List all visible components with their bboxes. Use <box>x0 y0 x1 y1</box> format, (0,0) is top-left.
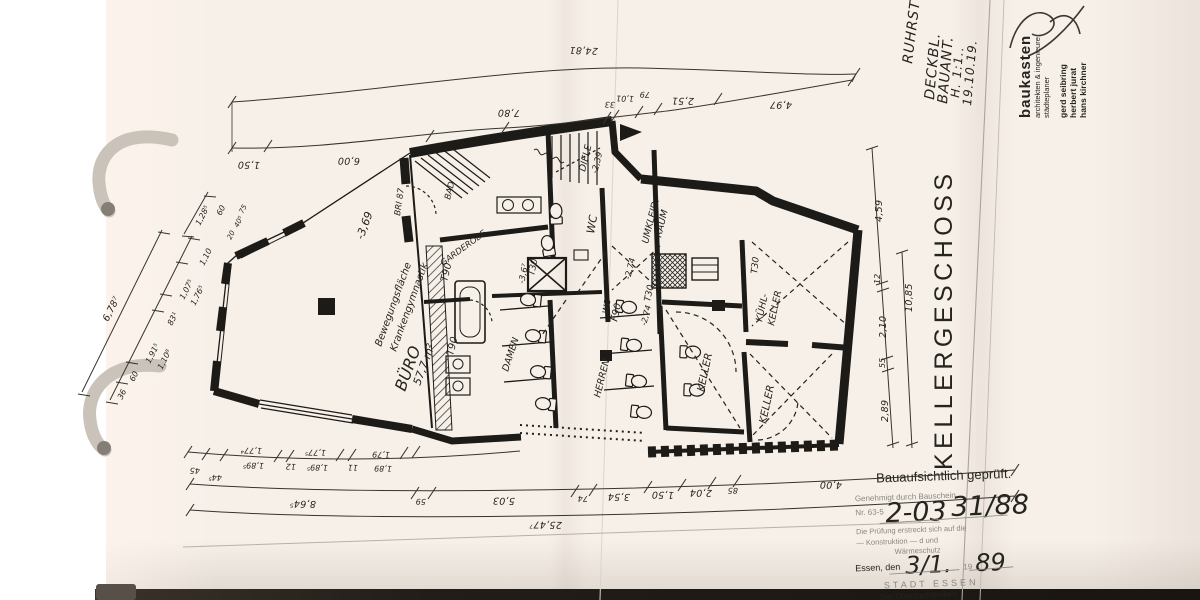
architect-partner1: gerd seibring <box>1058 64 1068 118</box>
architect-partner2: herbert jurat <box>1068 68 1078 118</box>
dim-top-s2: 6,00 <box>338 155 361 166</box>
dim-bot-s7: 2,04 <box>690 487 713 498</box>
dim-left-u3: 20 <box>226 229 237 241</box>
binder-ring-bottom <box>90 365 160 600</box>
dim-bot-s3: 5,03 <box>493 495 516 506</box>
dim-left-u4: 40⁵ <box>233 215 246 229</box>
binder-ring-top <box>99 137 172 216</box>
dim-top-s8: 4,97 <box>770 99 793 110</box>
room-herren-label: HERREN <box>592 358 612 399</box>
dim-bot-sub4: 1,89⁵ <box>243 461 264 470</box>
room-keller-label: KELLER <box>695 352 715 393</box>
dim-bot-s4: 74 <box>578 494 588 503</box>
door-t30a: T30 <box>527 258 540 277</box>
shaft-and-ducts <box>528 254 718 291</box>
architect-sub1: architekten & ingenieure <box>1033 37 1042 118</box>
dim-left-s5: 83¹ <box>166 311 180 327</box>
dim-top-s7: 2,51 <box>672 95 695 106</box>
room-damen-label: DAMEN <box>500 336 521 373</box>
dim-right-overall: 10,85 <box>904 283 915 312</box>
dimension-chain-right: 4,59 12 2,10 55 2,89 10,85 <box>866 146 918 448</box>
dim-top-s1: 1,50 <box>238 159 261 170</box>
dim-top-s4: 33 <box>605 100 615 109</box>
scanned-floorplan-photo: BÜRO 57,7 m² -3,69 Bewegungsfläche Krank… <box>0 0 1200 600</box>
dim-bot-sub5: 12 <box>286 462 296 471</box>
room-wc-label: WC <box>584 214 600 235</box>
dim-top-s6: 79 <box>640 90 650 99</box>
note-level: -3,69 <box>354 210 376 241</box>
dim-top-s5: 1,01 <box>616 94 634 103</box>
room-bad-label: BAD <box>443 180 457 201</box>
room-garderobe-label: GARDEROBE <box>439 228 489 268</box>
door-t30b: T30 <box>643 284 656 303</box>
header-note-1: RUHRST <box>900 0 924 64</box>
dim-left-s8: 1,10 <box>198 247 214 267</box>
stamp-hand-day: 3/1. <box>905 550 952 580</box>
dim-bot-sub3: 1,77⁴ <box>240 446 262 455</box>
stamp-line1: Bauaufsichtlich geprüft. <box>876 466 1012 486</box>
dim-left-s1: 36 <box>116 388 129 401</box>
dim-bot-s6: 1,50 <box>652 489 675 500</box>
level-274b: -2,74 <box>639 304 653 326</box>
dim-top-overall: 24,81 <box>569 44 598 56</box>
dim-bot-sub8: 11 <box>348 463 358 472</box>
dim-bot-overall: 25,47⁷ <box>529 518 562 530</box>
dim-right-s1: 4,59 <box>874 200 885 222</box>
wall-bri-label: BRI 87 <box>393 187 407 216</box>
dim-right-s3: 2,10 <box>878 316 889 338</box>
stamp-city-date-label: Essen, den <box>855 562 900 574</box>
dim-left-overall: 6,78⁷ <box>101 295 123 324</box>
stamp-line8: STADT ESSEN <box>884 577 979 590</box>
stamp-line4: Die Prüfung erstreckt sich auf die <box>856 523 967 536</box>
dim-bot-sub2: 44⁵ <box>208 473 222 482</box>
dim-left-u5: 75 <box>238 203 249 215</box>
room-keller2-label: KELLER <box>757 384 777 425</box>
dim-bot-sub1: 45 <box>190 466 200 475</box>
dim-bot-sub10: 1,89 <box>374 464 392 473</box>
architect-block: baukasten architekten & ingenieure städt… <box>1017 35 1088 118</box>
dim-left-u2: 60 <box>215 204 228 217</box>
dim-left-u1: 1,28⁵ <box>194 204 212 227</box>
door-t30c: T30 <box>750 256 762 274</box>
header-handwriting: RUHRST DECKBL. BAUANT. H. 1:1.. 19.10.19… <box>900 0 980 106</box>
floorplan-drawing: BÜRO 57,7 m² -3,69 Bewegungsfläche Krank… <box>0 0 1200 600</box>
architect-sub2: städteplaner <box>1042 76 1051 118</box>
room-diele-level: -2,39 <box>590 151 605 175</box>
dim-right-s5: 2,89 <box>880 400 891 422</box>
dim-bot-s8: 85 <box>728 486 738 495</box>
dimension-chain-top: 24,81 1,50 6,00 7,80 33 1,01 79 2,51 4,9… <box>228 44 860 170</box>
dim-right-s4: 55 <box>878 358 887 368</box>
dim-bot-s5: 3,54 <box>608 491 631 502</box>
stamp-line3-printed: Nr. 63-5 <box>855 507 884 517</box>
approval-stamp: Bauaufsichtlich geprüft. Genehmigt durch… <box>852 465 1032 600</box>
dim-bot-sub9: 1,79 <box>372 450 390 459</box>
dim-bot-sub7: 1,89⁵ <box>307 463 328 472</box>
dim-bot-sub6: 1,77⁵ <box>305 448 326 457</box>
dim-top-s3: 7,80 <box>498 107 521 118</box>
level-274: -2,74 <box>623 257 638 281</box>
architect-firm: baukasten <box>1017 35 1034 118</box>
dim-bot-s2: 59 <box>416 497 426 506</box>
stamp-line9: Der Oberstadtdirektor <box>880 590 958 600</box>
dim-right-s2: 12 <box>873 274 882 284</box>
stamp-hand-year: 89 <box>975 548 1007 577</box>
drawing-title: KELLERGESCHOSS <box>930 169 958 470</box>
dim-bot-s9: 4,00 <box>820 479 843 490</box>
architect-partner3: hans kirchner <box>1078 62 1088 118</box>
dim-bot-s1: 8,64⁵ <box>289 498 316 509</box>
